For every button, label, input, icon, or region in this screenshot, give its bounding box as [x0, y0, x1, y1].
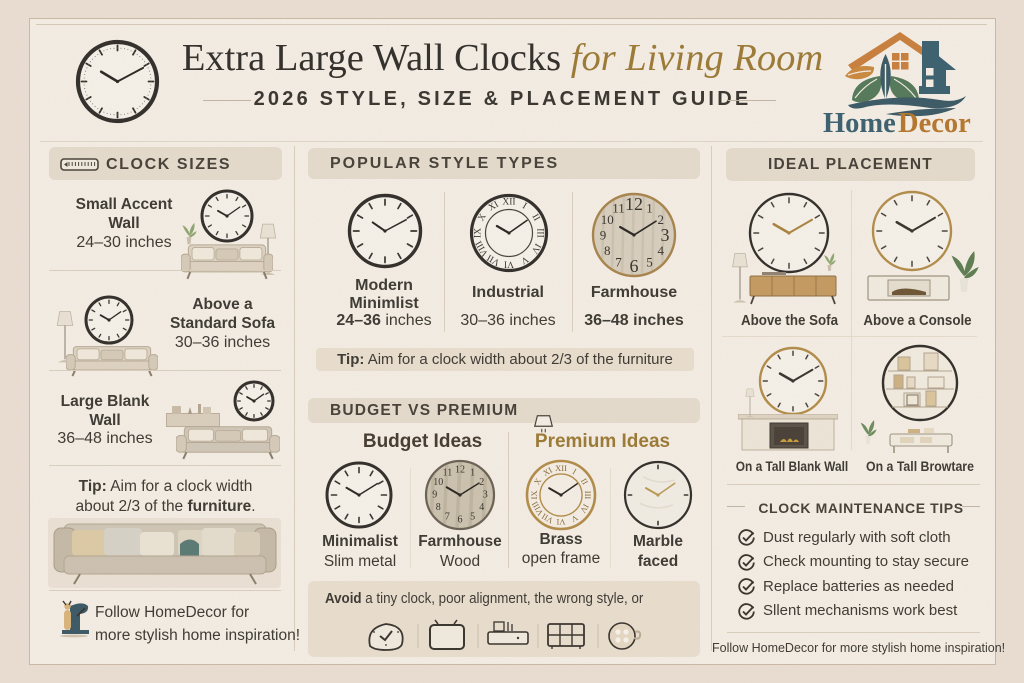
svg-text:8: 8: [604, 243, 611, 258]
svg-text:IX: IX: [529, 491, 539, 500]
svg-text:7: 7: [615, 254, 622, 269]
svg-text:III: III: [535, 228, 545, 238]
svg-text:IX: IX: [474, 228, 484, 238]
svg-text:III: III: [583, 491, 593, 500]
svg-text:12: 12: [625, 194, 643, 214]
svg-text:XII: XII: [502, 198, 515, 208]
svg-text:Decor: Decor: [898, 108, 971, 139]
svg-text:6: 6: [630, 256, 639, 276]
svg-text:6: 6: [458, 515, 463, 526]
svg-text:2: 2: [479, 477, 484, 488]
svg-text:11: 11: [612, 201, 625, 216]
svg-text:4: 4: [479, 502, 484, 513]
svg-text:4: 4: [658, 243, 665, 258]
svg-text:5: 5: [470, 511, 475, 522]
svg-text:11: 11: [443, 468, 453, 479]
svg-text:1: 1: [470, 468, 475, 479]
svg-text:VI: VI: [504, 259, 514, 269]
svg-text:7: 7: [445, 511, 450, 522]
svg-text:9: 9: [600, 228, 607, 243]
svg-text:5: 5: [646, 254, 653, 269]
svg-text:3: 3: [483, 490, 488, 501]
svg-text:12: 12: [455, 464, 465, 475]
svg-text:VI: VI: [556, 517, 565, 527]
svg-text:Home: Home: [823, 108, 896, 139]
svg-text:3: 3: [661, 225, 670, 245]
svg-text:XII: XII: [555, 463, 567, 473]
svg-text:1: 1: [646, 201, 653, 216]
svg-text:8: 8: [436, 502, 441, 513]
svg-text:9: 9: [432, 490, 437, 501]
